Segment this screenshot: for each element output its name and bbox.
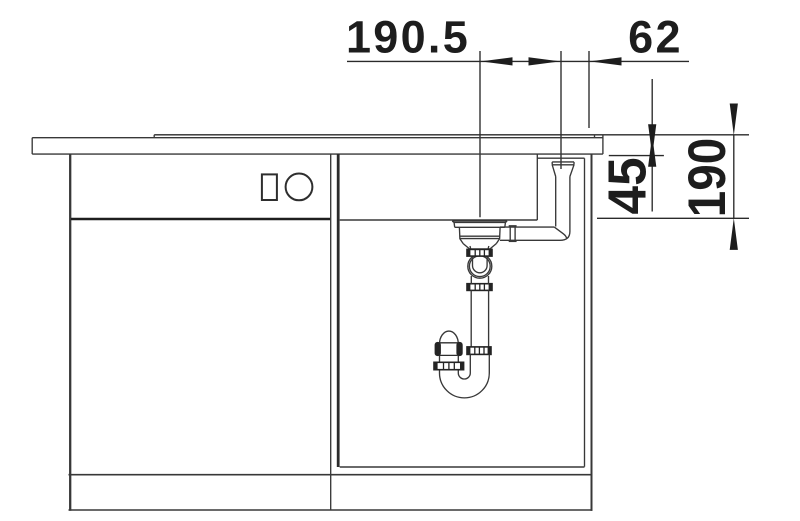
svg-text:45: 45 <box>597 157 657 214</box>
svg-text:62: 62 <box>628 12 683 63</box>
svg-text:190: 190 <box>678 138 737 217</box>
svg-text:190.5: 190.5 <box>346 12 470 63</box>
